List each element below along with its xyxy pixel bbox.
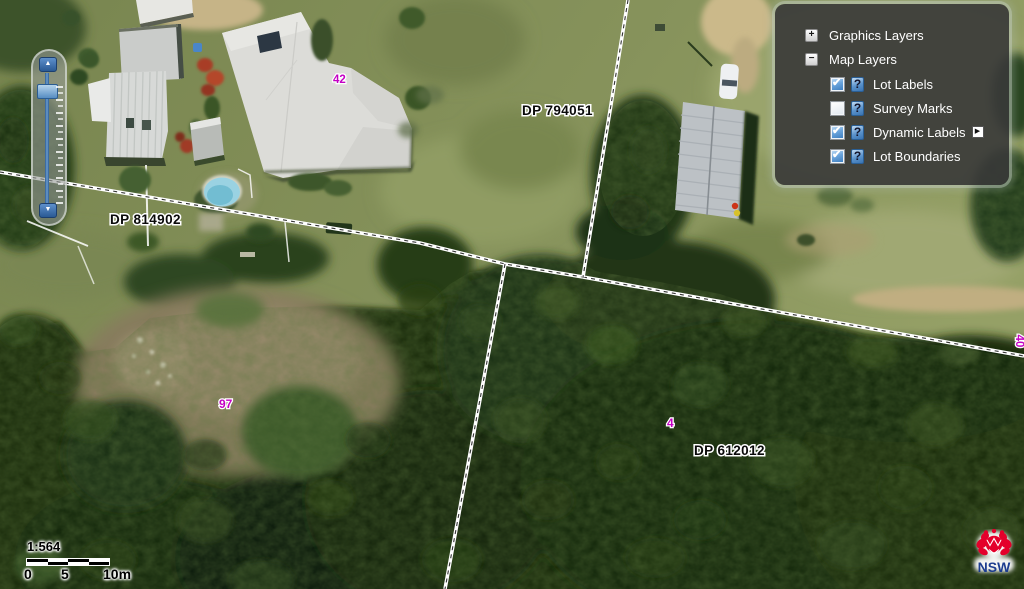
svg-text:4: 4 bbox=[667, 416, 674, 430]
svg-text:DP 794051: DP 794051 bbox=[522, 103, 593, 118]
svg-text:DP 612012: DP 612012 bbox=[694, 443, 765, 458]
svg-text:42: 42 bbox=[333, 74, 346, 86]
svg-text:DP 814902: DP 814902 bbox=[110, 212, 181, 227]
svg-text:NSW: NSW bbox=[978, 559, 1011, 575]
svg-text:40: 40 bbox=[1013, 335, 1024, 348]
svg-text:97: 97 bbox=[219, 397, 233, 411]
